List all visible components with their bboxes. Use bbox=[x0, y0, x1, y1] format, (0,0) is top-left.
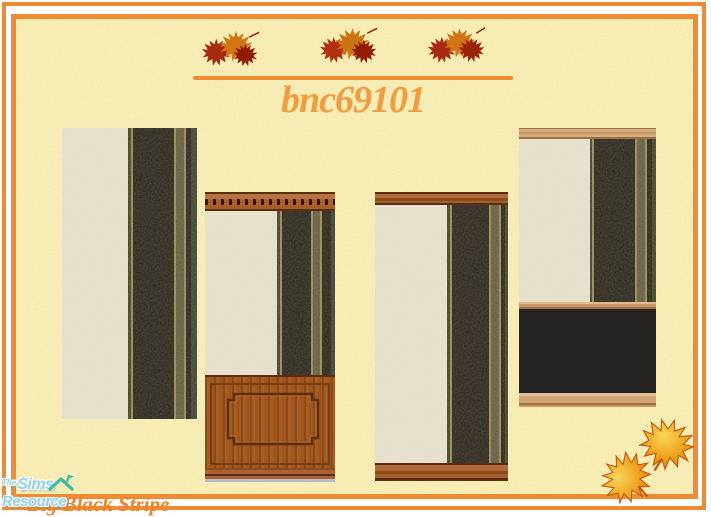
light-wood-chair-rail bbox=[519, 302, 656, 309]
light-wood-baseboard bbox=[519, 393, 656, 407]
wallpaper-texture bbox=[375, 205, 508, 463]
roof-icon bbox=[48, 474, 74, 492]
wood-wainscot bbox=[205, 375, 335, 482]
sims-resource-logo: TheSims Resource bbox=[2, 477, 82, 509]
black-dado-section bbox=[519, 309, 656, 393]
maple-leaf-cluster-icon bbox=[201, 30, 265, 72]
crown-molding bbox=[205, 192, 335, 211]
stripe-wallpaper-section bbox=[205, 211, 335, 375]
maple-leaf-cluster-icon bbox=[318, 27, 382, 69]
crown-molding-top bbox=[205, 192, 335, 199]
wallpaper-panel-wood-rails bbox=[375, 192, 508, 481]
wallpaper-panel-wood-wainscot bbox=[205, 192, 335, 482]
wood-bottom-rail bbox=[375, 463, 508, 481]
tsr-preview-card: bnc69101 bbox=[0, 0, 711, 517]
maple-leaf-cluster-icon bbox=[427, 26, 491, 68]
page-title: bnc69101 bbox=[193, 80, 513, 120]
logo-resource-label: Resource bbox=[2, 494, 82, 509]
logo-the-label: The bbox=[2, 478, 16, 487]
stripe-wallpaper-section bbox=[519, 139, 656, 302]
wallpaper-panel-black-dado bbox=[519, 128, 656, 407]
wood-top-rail bbox=[375, 192, 508, 205]
stripe-wallpaper-section bbox=[375, 205, 508, 463]
wallpaper-texture bbox=[519, 139, 656, 302]
wainscot-inset-panel bbox=[205, 377, 335, 468]
wallpaper-texture bbox=[205, 211, 335, 375]
logo-line-1: TheSims bbox=[2, 477, 82, 493]
wallpaper-swatch-plain-stripe bbox=[62, 128, 197, 419]
selection-artifact-line bbox=[205, 479, 335, 482]
wallpaper-texture bbox=[62, 128, 197, 419]
light-wood-top-rail bbox=[519, 128, 656, 139]
